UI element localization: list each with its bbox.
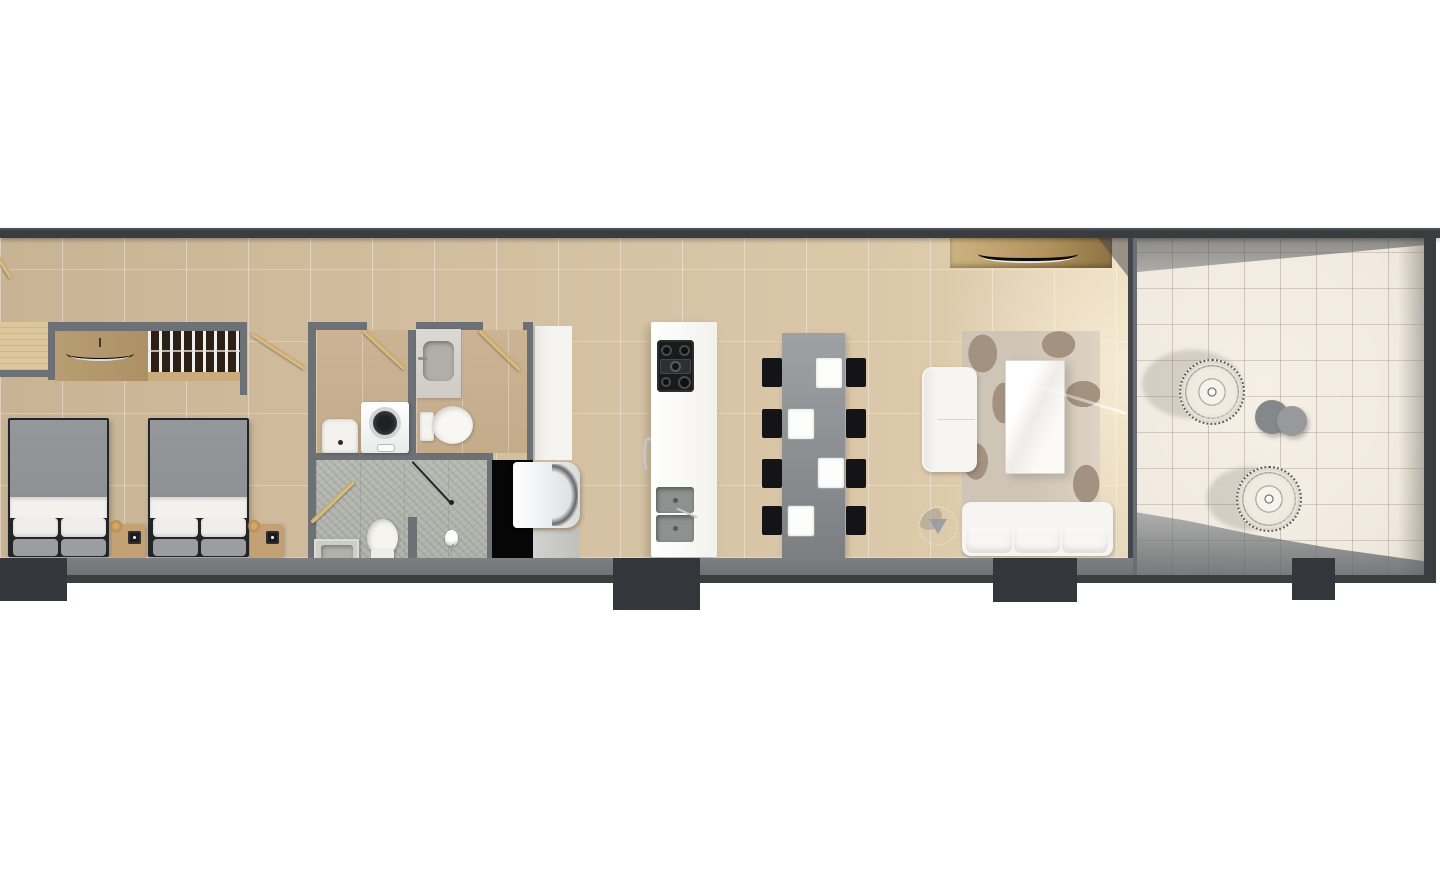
wicker-chair-1 [1179, 359, 1245, 425]
pillar-terrace [1292, 558, 1335, 600]
place-setting-1 [815, 357, 843, 389]
guest-vanity-basin [423, 341, 454, 381]
kitchen-counter [533, 326, 572, 460]
sofa [962, 502, 1113, 556]
place-setting-4 [787, 505, 815, 537]
loveseat-seam [938, 419, 975, 420]
dining-chair-r1 [846, 358, 866, 387]
hob-griddle-burner [670, 361, 681, 372]
island-faucet [643, 437, 654, 473]
hob-burner-2 [679, 345, 690, 356]
laundry-basin [322, 419, 358, 453]
round-chair-triangle [929, 519, 947, 534]
dining-chair-l3 [762, 459, 782, 488]
glass-wall [1128, 238, 1137, 583]
wall-under-console [0, 370, 48, 377]
bed-1-pillow-gray-b [61, 539, 106, 556]
dining-chair-l4 [762, 506, 782, 535]
nightstand-2-lamp-dot [271, 536, 274, 539]
hob-burner-3 [661, 377, 671, 387]
bed-1-pillow-white-a [13, 518, 58, 537]
wicker-chair-2 [1236, 466, 1302, 532]
bed-1-pillow-white-b [61, 518, 106, 537]
pillar-kitchen [613, 558, 700, 610]
dining-chair-r3 [846, 459, 866, 488]
dining-chair-r2 [846, 409, 866, 438]
bed-2-pillow-gray-b [201, 539, 246, 556]
hob-burner-4 [678, 376, 691, 389]
bed-1-sheet [10, 497, 107, 518]
wardrobe-shelf [148, 372, 240, 381]
entry-console [0, 322, 48, 370]
laundry-basin-drain [338, 440, 343, 445]
washing-machine-drawer [377, 444, 395, 452]
dining-chair-l1 [762, 358, 782, 387]
sink-drain-2 [673, 526, 678, 531]
sofa-cushion-3 [1062, 528, 1108, 553]
closet-left-wall [48, 331, 55, 380]
bottom-wall-line [67, 575, 1432, 583]
nightstand-1-plant [110, 520, 122, 532]
dining-chair-r4 [846, 506, 866, 535]
glass-shower-door-knob [449, 500, 454, 505]
refrigerator-door-arc [552, 464, 578, 526]
bed-2-pillow-white-a [153, 518, 198, 537]
tv-glint [70, 350, 130, 361]
hob-burner-1 [661, 345, 672, 356]
bath-mid-wall [316, 453, 492, 460]
bed-2-pillow-white-b [201, 518, 246, 537]
loveseat-back [924, 369, 936, 470]
bottom-wall-band [67, 558, 1133, 575]
washing-machine-door [369, 407, 401, 439]
sofa-cushion-1 [966, 528, 1012, 553]
right-wall [1424, 232, 1436, 583]
pillar-living [993, 558, 1077, 602]
bath-divider-wall [408, 330, 416, 453]
bed-2-sheet [150, 497, 247, 518]
pillar-left [0, 558, 67, 601]
bed-1-pillow-gray-a [13, 539, 58, 556]
top-wall [0, 228, 1440, 238]
closet-top-wall [48, 322, 247, 331]
place-setting-3 [817, 457, 845, 489]
terrace-right-shadow [1398, 238, 1424, 577]
sofa-cushion-2 [1014, 528, 1060, 553]
living-tv-glint [982, 251, 1074, 263]
place-setting-2 [787, 408, 815, 440]
nightstand-2-plant [248, 520, 260, 532]
pouf-2 [1277, 406, 1307, 436]
tv-stand [99, 338, 101, 347]
coffee-table [1005, 360, 1065, 474]
bed-1-duvet [10, 420, 107, 497]
round-lounge-chair [918, 506, 958, 546]
bed-2-duvet [150, 420, 247, 497]
floor-plan-canvas [0, 0, 1440, 880]
wardrobe-rail-bar [148, 350, 240, 352]
bed-2-pillow-gray-a [153, 539, 198, 556]
nightstand-1-lamp-dot [133, 536, 136, 539]
dining-chair-l2 [762, 409, 782, 438]
closet-right-wall [240, 331, 247, 395]
guest-toilet-bowl [432, 406, 473, 444]
sink-drain-1 [673, 498, 678, 503]
bath-top-wall-a [316, 322, 367, 330]
guest-vanity-faucet [418, 357, 427, 360]
